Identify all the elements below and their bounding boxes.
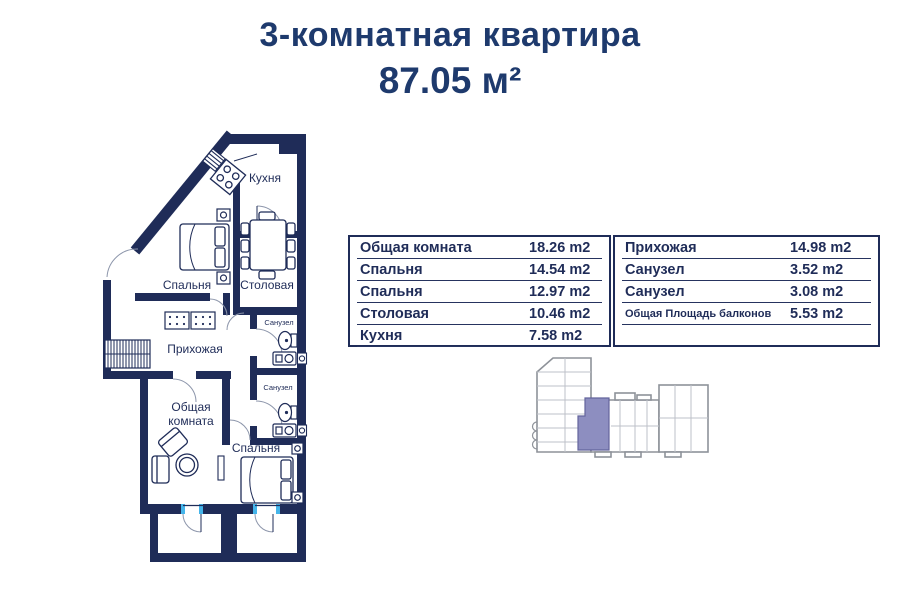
- room-label-dining: Столовая: [240, 278, 294, 292]
- apartment-total-area: 87.05 м²: [0, 60, 900, 102]
- washer-icon-1: [273, 352, 296, 365]
- room-area: 5.53 m2: [790, 306, 843, 322]
- room-name: Общая комната: [357, 240, 472, 256]
- washer-icon-2: [273, 424, 296, 437]
- table-row: Санузел 3.52 m2: [622, 259, 871, 281]
- riser-icon-1: [298, 353, 307, 364]
- room-label-bedroom-top: Спальня: [163, 278, 211, 292]
- room-name: Прихожая: [622, 240, 697, 256]
- riser-icon-2: [298, 425, 307, 436]
- room-label-hallway: Прихожая: [167, 342, 223, 356]
- area-table-left: Общая комната 18.26 m2 Спальня 14.54 m2 …: [348, 235, 611, 347]
- room-name: Спальня: [357, 284, 423, 300]
- room-area: 7.58 m2: [529, 328, 582, 344]
- room-label-kitchen: Кухня: [249, 171, 281, 185]
- room-label-bathroom-1: Санузел: [264, 318, 293, 327]
- room-area: 18.26 m2: [529, 240, 590, 256]
- kitchen-counter-edge: [234, 154, 257, 161]
- toilet-icon-1: [279, 332, 298, 350]
- table-row: Прихожая 14.98 m2: [622, 237, 871, 259]
- room-label-bedroom-bottom: Спальня: [232, 441, 280, 455]
- armchair-icon: [157, 427, 188, 458]
- room-name: Общая Площадь балконов: [622, 308, 771, 320]
- room-name: Столовая: [357, 306, 429, 322]
- apartment-type-title: 3-комнатная квартира: [0, 16, 900, 55]
- bed-bottom-icon: [241, 457, 293, 503]
- room-area: 3.08 m2: [790, 284, 843, 300]
- room-area: 3.52 m2: [790, 262, 843, 278]
- wardrobe-icon: [105, 340, 150, 368]
- table-row: Кухня 7.58 m2: [357, 325, 602, 347]
- table-row: Санузел 3.08 m2: [622, 281, 871, 303]
- dining-table-icon: [241, 212, 295, 279]
- room-area: 12.97 m2: [529, 284, 590, 300]
- bed-top-icon: [180, 224, 229, 270]
- table-row: Общая Площадь балконов 5.53 m2: [622, 303, 871, 325]
- table-row: Столовая 10.46 m2: [357, 303, 602, 325]
- table-row: Спальня 14.54 m2: [357, 259, 602, 281]
- table-row: Общая комната 18.26 m2: [357, 237, 602, 259]
- room-name: Кухня: [357, 328, 402, 344]
- area-table-right: Прихожая 14.98 m2 Санузел 3.52 m2 Санузе…: [613, 235, 880, 347]
- room-area: 10.46 m2: [529, 306, 590, 322]
- table-row: Спальня 12.97 m2: [357, 281, 602, 303]
- toilet-icon-2: [279, 404, 298, 422]
- room-label-living-1: Общая: [171, 400, 210, 414]
- page-title: 3-комнатная квартира 87.05 м²: [0, 16, 900, 102]
- room-area: 14.98 m2: [790, 240, 851, 256]
- room-area: 14.54 m2: [529, 262, 590, 278]
- room-label-bathroom-2: Санузел: [263, 383, 292, 392]
- room-name: Санузел: [622, 284, 685, 300]
- building-locator-map: [525, 352, 715, 470]
- tv-icon: [218, 456, 224, 480]
- hallway-cabinet-icons: [165, 312, 215, 329]
- sofa-icon: [152, 456, 169, 483]
- room-name: Санузел: [622, 262, 685, 278]
- floor-plan: Кухня Спальня Столовая Прихожая Санузел …: [95, 125, 315, 570]
- coffee-table-icon: [176, 454, 198, 476]
- room-label-living-2: комната: [168, 414, 214, 428]
- room-name: Спальня: [357, 262, 423, 278]
